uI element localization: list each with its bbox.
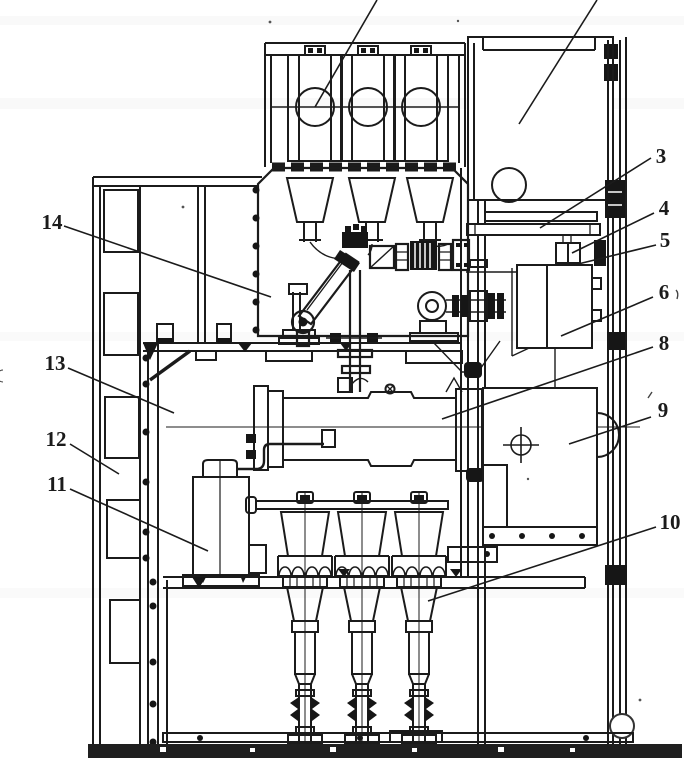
door-bottom-hole [610,714,634,738]
lower-right-door [483,388,619,545]
mechanism-housing [517,265,592,348]
hinge-block [604,64,618,81]
cable-termination [335,492,389,755]
switchgear-cross-section-figure: 3 4 5 6 8 9 10 11 12 13 14 [0,0,684,758]
comma-after-6 [676,290,678,299]
door-panel [483,388,597,545]
vent-cutout [105,397,139,458]
callout-6: 6 [659,280,670,304]
leader-line-5 [574,245,656,265]
diagram-canvas: 3 4 5 6 8 9 10 11 12 13 14 [0,0,684,758]
callout-12: 12 [46,427,67,451]
flange-bolts [143,355,157,746]
vent-cutout [104,190,138,252]
door-hinge [594,180,642,756]
base-band [88,744,682,758]
vent-cutout [104,293,138,355]
callout-9: 9 [658,398,669,422]
mechanism-box [517,243,601,388]
instrument-shelf [467,212,600,243]
bellows-assembly [342,224,469,270]
callout-10: 10 [660,510,681,534]
top-right-panel-outline [468,37,613,200]
tick-near-9 [648,392,652,398]
bellows [410,241,437,270]
drive-shaft [326,270,382,392]
cable-terminations [278,492,446,755]
callout-5: 5 [660,228,671,252]
cable-termination [392,492,446,755]
edge-mark [0,370,3,382]
leader-line-14 [64,226,271,297]
callout-13: 13 [45,351,66,375]
callout-14: 14 [42,210,64,234]
callout-11: 11 [47,472,67,496]
top-right-panel [468,37,618,202]
callout-3: 3 [656,144,667,168]
flange-brace [150,351,190,380]
hinge-block [604,44,618,59]
callout-4: 4 [659,196,670,220]
cable-termination [278,492,332,755]
vent-cutout [110,600,140,663]
floor-bolts [197,735,589,741]
front-flange [148,343,167,750]
left-panel-inner-wall [198,187,205,343]
callout-8: 8 [659,331,670,355]
floor-strip [163,733,633,742]
breaker-cylinder [246,362,484,482]
